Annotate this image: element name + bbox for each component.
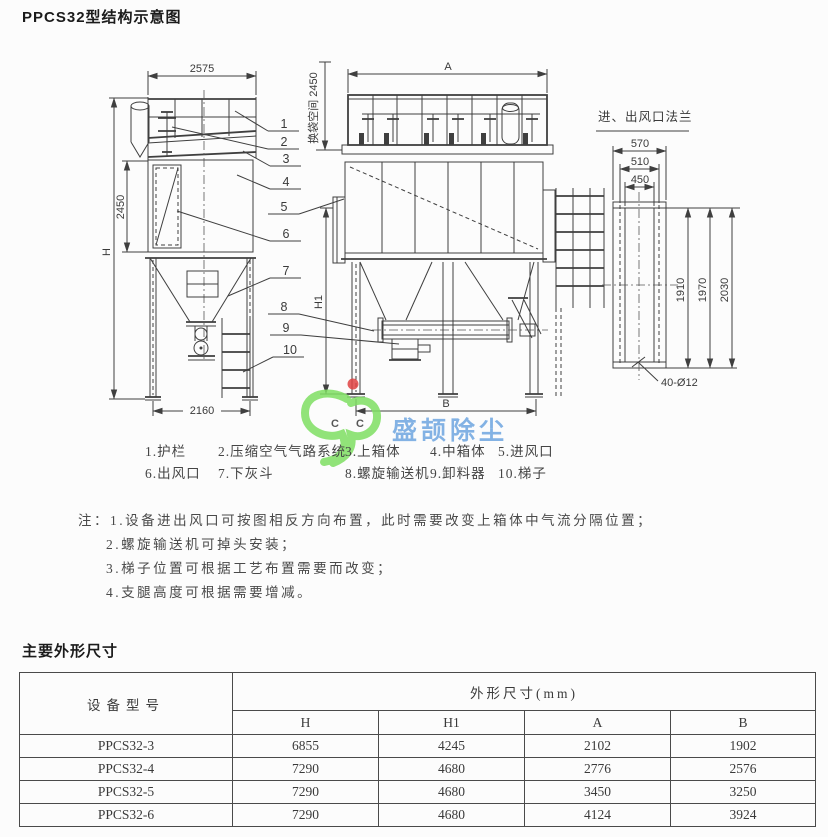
header-B: B — [671, 711, 816, 735]
dimensions-table: 设备型号 外形尺寸(mm) H H1 A B PPCS32-3 6855 424… — [19, 672, 816, 827]
callout-7: 7 — [283, 264, 290, 278]
front-view: A B H1 — [313, 61, 604, 416]
note-line-4: 4.支腿高度可根据需要增减。 — [106, 581, 653, 605]
page-title: PPCS32型结构示意图 — [22, 6, 182, 27]
logo-red-dot — [348, 379, 359, 390]
part-label-3: 3.上箱体 — [345, 440, 401, 460]
structure-diagram: 2575 H 2450 2160 换袋空间 2450 — [0, 0, 828, 470]
dim-570: 570 — [631, 138, 649, 150]
dim-bolt-holes: 40-Ø12 — [661, 377, 698, 389]
dim-450: 450 — [631, 174, 649, 186]
callout-4: 4 — [283, 175, 290, 189]
table-row: PPCS32-5 7290 4680 3450 3250 — [20, 781, 816, 804]
cell-H1: 4680 — [379, 758, 525, 781]
dim-A: A — [444, 61, 452, 73]
side-view: 2575 H 2450 2160 换袋空间 2450 — [101, 62, 342, 417]
cell-model: PPCS32-6 — [20, 804, 233, 827]
cell-A: 4124 — [525, 804, 671, 827]
callout-8: 8 — [281, 300, 288, 314]
cell-model: PPCS32-3 — [20, 735, 233, 758]
note-line-3: 3.梯子位置可根据工艺布置需要而改变； — [106, 557, 653, 581]
screw-conveyor — [372, 298, 548, 342]
header-H: H — [233, 711, 379, 735]
air-tank — [131, 102, 149, 157]
dim-510: 510 — [631, 156, 649, 168]
logo-letter-c2: C — [356, 418, 364, 430]
header-dimensions-group: 外形尺寸(mm) — [233, 673, 816, 711]
dim-2030: 2030 — [719, 278, 731, 302]
table-row: PPCS32-4 7290 4680 2776 2576 — [20, 758, 816, 781]
dim-B: B — [442, 398, 449, 410]
part-label-10: 10.梯子 — [498, 462, 547, 482]
dim-1970: 1970 — [697, 278, 709, 302]
dim-2450: 2450 — [115, 195, 127, 219]
callout-9: 9 — [283, 321, 290, 335]
flange-view: 进、出风口法兰 570 510 450 1910 1970 2030 — [596, 110, 740, 389]
dim-1910: 1910 — [675, 278, 687, 302]
cell-B: 2576 — [671, 758, 816, 781]
cell-H1: 4245 — [379, 735, 525, 758]
part-label-7: 7.下灰斗 — [218, 462, 274, 482]
drive-motor — [389, 339, 430, 360]
note-prefix: 注： — [78, 513, 110, 528]
table-header-row-1: 设备型号 外形尺寸(mm) — [20, 673, 816, 711]
header-A: A — [525, 711, 671, 735]
header-H1: H1 — [379, 711, 525, 735]
table-row: PPCS32-3 6855 4245 2102 1902 — [20, 735, 816, 758]
part-label-6: 6.出风口 — [145, 462, 201, 482]
cell-H: 7290 — [233, 804, 379, 827]
part-label-5: 5.进风口 — [498, 440, 554, 460]
callout-3: 3 — [283, 152, 290, 166]
cell-A: 2102 — [525, 735, 671, 758]
dim-H1: H1 — [313, 295, 325, 309]
flange-title: 进、出风口法兰 — [598, 110, 693, 124]
cell-H: 7290 — [233, 781, 379, 804]
cell-B: 1902 — [671, 735, 816, 758]
cell-B: 3924 — [671, 804, 816, 827]
part-label-8: 8.螺旋输送机 — [345, 462, 430, 482]
dim-2575: 2575 — [190, 63, 214, 75]
callout-1: 1 — [281, 117, 288, 131]
callout-leaders: 1 2 3 4 5 6 7 8 9 10 — [172, 111, 399, 372]
cell-A: 3450 — [525, 781, 671, 804]
callout-2: 2 — [281, 135, 288, 149]
dim-2160: 2160 — [190, 405, 214, 417]
callout-10: 10 — [283, 343, 297, 357]
cell-model: PPCS32-5 — [20, 781, 233, 804]
cell-H1: 4680 — [379, 804, 525, 827]
callout-5: 5 — [281, 200, 288, 214]
logo-letter-c1: C — [331, 418, 339, 430]
cell-model: PPCS32-4 — [20, 758, 233, 781]
header-model: 设备型号 — [20, 673, 233, 735]
part-label-1: 1.护栏 — [145, 440, 186, 460]
cell-H1: 4680 — [379, 781, 525, 804]
callout-6: 6 — [283, 227, 290, 241]
cell-B: 3250 — [671, 781, 816, 804]
dim-headroom: 换袋空间 2450 — [306, 72, 320, 144]
cell-H: 7290 — [233, 758, 379, 781]
cage-ladder — [556, 188, 604, 396]
notes: 注：1.设备进出风口可按图相反方向布置，此时需要改变上箱体中气流分隔位置； 2.… — [78, 509, 653, 605]
note-line-1: 注：1.设备进出风口可按图相反方向布置，此时需要改变上箱体中气流分隔位置； — [78, 509, 653, 533]
dim-H: H — [101, 248, 113, 256]
section-title: 主要外形尺寸 — [22, 640, 118, 661]
table-row: PPCS32-6 7290 4680 4124 3924 — [20, 804, 816, 827]
cell-A: 2776 — [525, 758, 671, 781]
side-ladder — [222, 318, 250, 398]
part-label-2: 2.压缩空气气路系统 — [218, 440, 346, 460]
part-label-9: 9.卸料器 — [430, 462, 486, 482]
cell-H: 6855 — [233, 735, 379, 758]
note-line-2: 2.螺旋输送机可掉头安装； — [106, 533, 653, 557]
part-label-4: 4.中箱体 — [430, 440, 486, 460]
pulse-valves — [359, 114, 538, 145]
